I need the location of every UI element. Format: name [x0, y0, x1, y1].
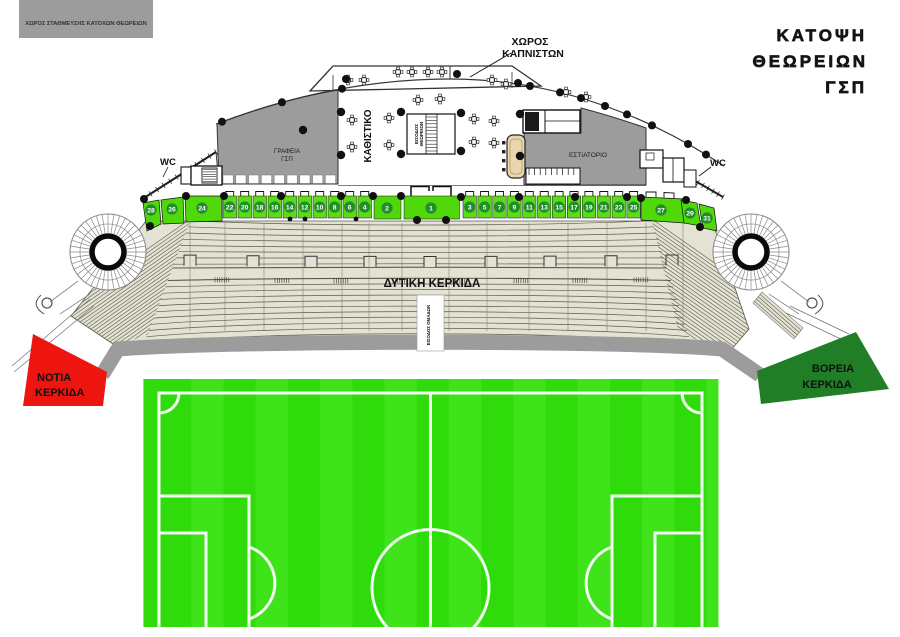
svg-text:ΚΕΡΚΙΔΑ: ΚΕΡΚΙΔΑ [35, 387, 85, 399]
svg-text:ΒΟΡΕΙΑ: ΒΟΡΕΙΑ [812, 363, 854, 375]
svg-text:14: 14 [286, 204, 294, 211]
svg-text:ΕΣΤΙΑΤΟΡΙΟ: ΕΣΤΙΑΤΟΡΙΟ [569, 152, 607, 159]
svg-text:ΧΩΡΟΣ ΣΤΑΘΜΕΥΣΗΣ ΚΑΤΟΧΩΝ ΘΕΩΡΕ: ΧΩΡΟΣ ΣΤΑΘΜΕΥΣΗΣ ΚΑΤΟΧΩΝ ΘΕΩΡΕΙΩΝ [25, 21, 146, 27]
svg-text:ΧΩΡΟΣ: ΧΩΡΟΣ [512, 36, 549, 48]
svg-text:13: 13 [540, 204, 548, 211]
svg-text:12: 12 [301, 204, 309, 211]
svg-text:ΚΑΤΟΨΗ: ΚΑΤΟΨΗ [777, 26, 867, 45]
svg-text:ΘΕΩΡΕΙΩΝ: ΘΕΩΡΕΙΩΝ [419, 121, 424, 146]
svg-text:19: 19 [585, 204, 593, 211]
svg-text:8: 8 [333, 204, 337, 211]
svg-text:23: 23 [615, 204, 623, 211]
svg-text:24: 24 [198, 205, 206, 212]
svg-text:16: 16 [271, 204, 279, 211]
svg-text:26: 26 [168, 206, 176, 213]
svg-text:WC: WC [710, 158, 726, 169]
svg-text:ΕΙΣΟΔΟΣ ΟΜΑΔΩΝ: ΕΙΣΟΔΟΣ ΟΜΑΔΩΝ [426, 305, 431, 345]
svg-text:17: 17 [570, 204, 578, 211]
svg-text:ΓΣΠ: ΓΣΠ [825, 78, 867, 97]
svg-text:ΘΕΩΡΕΙΩΝ: ΘΕΩΡΕΙΩΝ [753, 52, 869, 71]
svg-text:ΓΣΠ: ΓΣΠ [281, 156, 293, 163]
svg-text:15: 15 [555, 204, 563, 211]
svg-text:ΝΟΤΙΑ: ΝΟΤΙΑ [37, 372, 71, 384]
svg-text:9: 9 [513, 204, 517, 211]
svg-text:20: 20 [241, 204, 249, 211]
svg-text:29: 29 [686, 210, 694, 217]
svg-text:5: 5 [483, 204, 487, 211]
svg-text:ΓΡΑΦΕΙΑ: ΓΡΑΦΕΙΑ [274, 148, 301, 155]
svg-text:3: 3 [468, 204, 472, 211]
svg-text:2: 2 [385, 205, 389, 212]
svg-text:ΚΑΠΝΙΣΤΩΝ: ΚΑΠΝΙΣΤΩΝ [502, 48, 564, 60]
svg-text:ΔΥΤΙΚΗ ΚΕΡΚΙΔΑ: ΔΥΤΙΚΗ ΚΕΡΚΙΔΑ [384, 278, 481, 290]
svg-text:21: 21 [600, 204, 608, 211]
svg-text:ΚΑΘΙΣΤΙΚΟ: ΚΑΘΙΣΤΙΚΟ [363, 109, 374, 162]
svg-text:18: 18 [256, 204, 264, 211]
svg-text:28: 28 [147, 207, 155, 214]
svg-text:WC: WC [160, 157, 176, 168]
svg-text:7: 7 [498, 204, 502, 211]
svg-text:1: 1 [429, 205, 433, 212]
svg-text:ΚΕΡΚΙΔΑ: ΚΕΡΚΙΔΑ [802, 379, 852, 391]
svg-text:22: 22 [226, 204, 234, 211]
svg-text:27: 27 [657, 207, 665, 214]
svg-text:6: 6 [348, 204, 352, 211]
svg-text:11: 11 [526, 204, 533, 211]
svg-text:31: 31 [703, 215, 711, 222]
svg-text:25: 25 [630, 204, 638, 211]
svg-text:10: 10 [316, 204, 324, 211]
svg-text:4: 4 [363, 204, 367, 211]
